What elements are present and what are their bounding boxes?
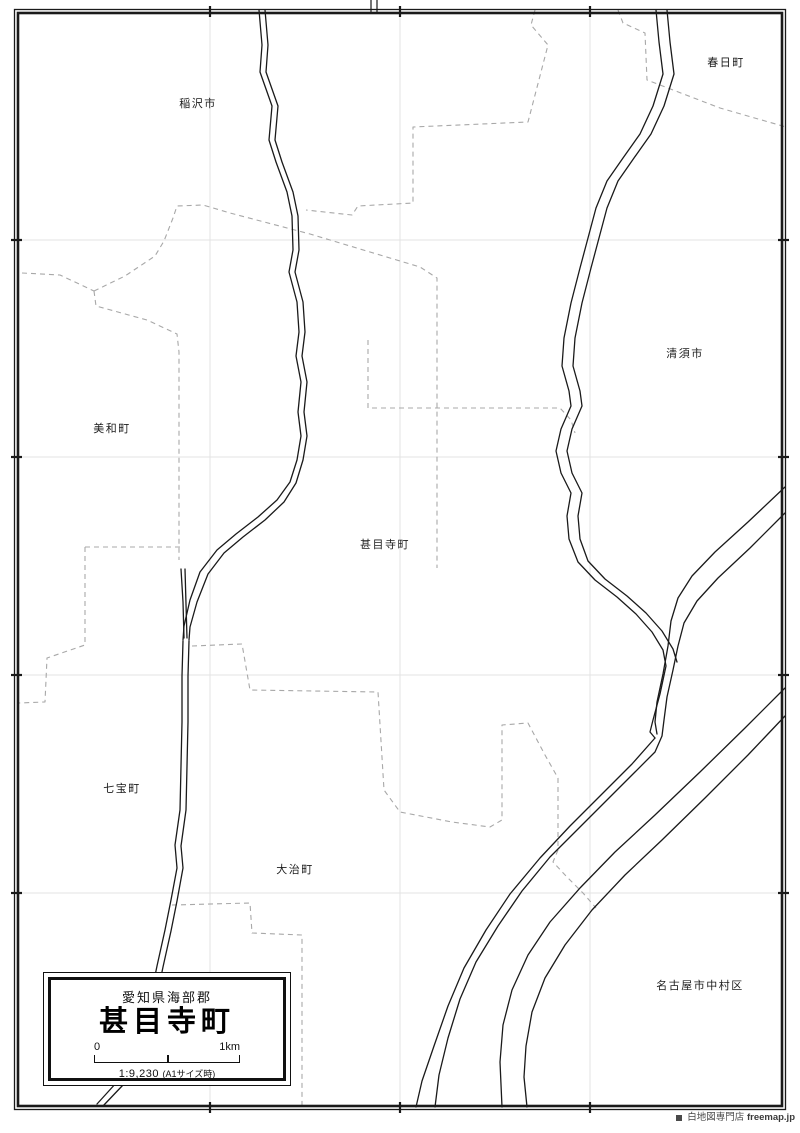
river-stub-top [371, 0, 377, 12]
credit-site: freemap.jp [747, 1112, 795, 1123]
freemap-logo-icon [674, 1113, 682, 1121]
district-title: 愛知県海部郡 [122, 987, 212, 1006]
place-label-haruhi: 春日町 [707, 54, 745, 70]
place-label-shippo: 七宝町 [103, 780, 141, 796]
boundary-northeast [618, 10, 786, 127]
scale-ratio-note: (A1サイズ時) [163, 1069, 216, 1079]
scale-bar-group: 0 1km [94, 1042, 240, 1063]
boundary-northwest [22, 273, 94, 291]
scale-bar [94, 1055, 240, 1063]
map-canvas [0, 0, 800, 1133]
river-branch-north [181, 569, 184, 638]
map-title: 甚目寺町 [99, 1007, 235, 1039]
title-card-inner-border: 愛知県海部郡 甚目寺町 0 1km 1:9,230 (A1サイズ時) [48, 977, 286, 1081]
boundary-south-jimokuji [192, 644, 596, 908]
river-branch-north [185, 569, 187, 638]
boundary-north-center [306, 10, 548, 215]
place-label-kiyosu: 清須市 [666, 345, 704, 361]
place-label-nagoya-nakamura: 名古屋市中村区 [656, 977, 744, 993]
place-label-jimokuji: 甚目寺町 [360, 536, 410, 552]
place-label-miwa: 美和町 [93, 420, 131, 436]
river-confluence-southeast [416, 487, 785, 1107]
credit-shop: 白地図専門店 [687, 1112, 744, 1123]
scale-zero-label: 0 [94, 1042, 100, 1053]
boundary-mid-horizontal [368, 340, 575, 433]
scale-bar-midtick [167, 1055, 169, 1062]
grid-lines [18, 13, 782, 1106]
map-page: 稲沢市 春日町 清須市 美和町 甚目寺町 七宝町 大治町 名古屋市中村区 愛知県… [0, 0, 800, 1133]
title-card: 愛知県海部郡 甚目寺町 0 1km 1:9,230 (A1サイズ時) [43, 972, 291, 1086]
place-label-inazawa: 稲沢市 [179, 95, 217, 111]
place-label-oharu: 大治町 [276, 861, 314, 877]
scale-ratio: 1:9,230 (A1サイズ時) [119, 1067, 216, 1080]
boundary-west-diagonal [94, 205, 437, 568]
scale-max-label: 1km [219, 1042, 240, 1053]
scale-ratio-value: 1:9,230 [119, 1068, 159, 1080]
river-west [97, 10, 307, 1106]
river-east [556, 10, 677, 738]
rivers [97, 0, 785, 1107]
boundary-lines [18, 10, 786, 1106]
credit-line: 白地図専門店 freemap.jp [674, 1113, 795, 1123]
boundary-southwest-b [18, 547, 85, 703]
